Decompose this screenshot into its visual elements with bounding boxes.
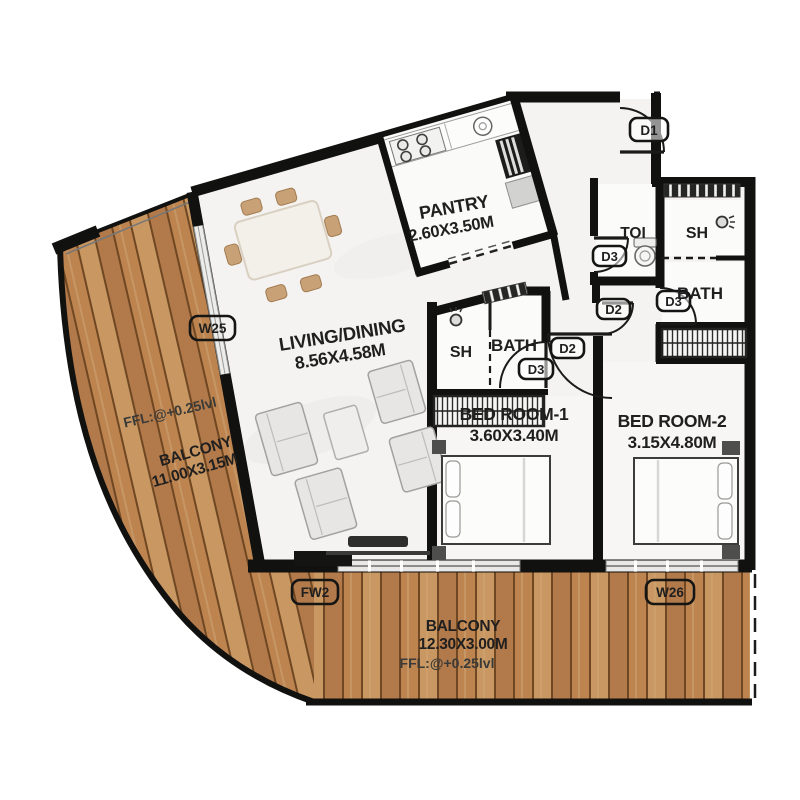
- bath-top-label: BATH: [677, 284, 723, 303]
- sh-top-label: SH: [686, 225, 708, 242]
- pillow: [718, 463, 732, 499]
- door-d3-label: D3: [601, 249, 618, 264]
- nightstand: [722, 545, 740, 559]
- sh-mid-label: SH: [450, 344, 472, 361]
- pillow: [718, 503, 732, 539]
- bath-mid-label: BATH: [491, 336, 537, 355]
- wardrobe-bed2: [662, 329, 746, 357]
- balcony-bottom-label: BALCONY: [426, 618, 501, 635]
- bed2-label: BED ROOM-2: [618, 411, 727, 431]
- door-d3-label: D3: [528, 362, 545, 377]
- window-w26-label: W26: [656, 585, 684, 600]
- bed1-dims: 3.60X3.40M: [470, 426, 559, 445]
- floor-plan-canvas: D1 D3 D2 D3 D2 D3 W25 FW2: [0, 0, 800, 800]
- balcony-bottom-deck: [306, 566, 755, 702]
- balcony-bottom-ffl: FFL:@+0.25lvl: [400, 655, 495, 671]
- window-w25-label: W25: [199, 321, 227, 336]
- toi-label: TOI: [620, 225, 646, 242]
- nightstand: [432, 546, 446, 560]
- bed2-dims: 3.15X4.80M: [628, 433, 717, 452]
- pillow: [446, 501, 460, 537]
- window-w26: [606, 561, 738, 572]
- pillow: [446, 461, 460, 497]
- louver-window-top: [664, 184, 740, 197]
- window-fw2-label: FW2: [301, 585, 330, 600]
- bed-bedroom1: [432, 440, 550, 560]
- toilet-icon: [634, 238, 656, 266]
- window-fw2: [338, 561, 520, 572]
- floor-plan-page: D1 D3 D2 D3 D2 D3 W25 FW2: [0, 0, 800, 800]
- nightstand: [722, 441, 740, 455]
- door-d2-label: D2: [605, 302, 622, 317]
- door-d1-label: D1: [640, 123, 658, 138]
- balcony-bottom-dims: 12.30X3.00M: [419, 636, 508, 653]
- bed1-label: BED ROOM-1: [460, 404, 569, 424]
- nightstand: [432, 440, 446, 454]
- door-d2-label: D2: [559, 341, 576, 356]
- bed-bedroom2: [634, 441, 740, 559]
